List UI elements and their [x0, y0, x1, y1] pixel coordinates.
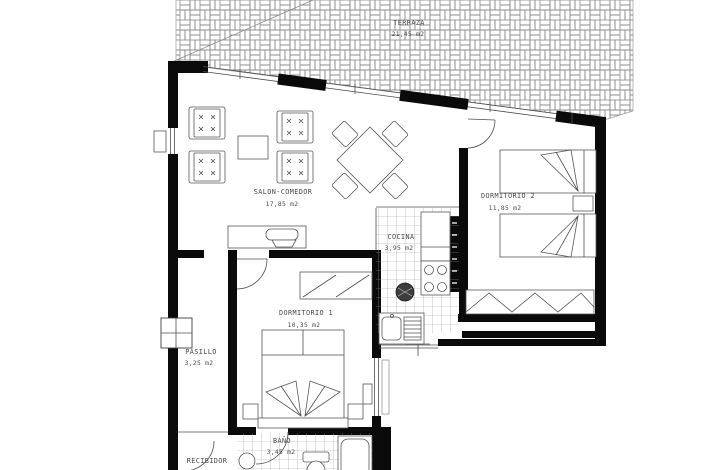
cocina-label: COCINA [388, 233, 415, 241]
cocina-area: 3,95 m2 [385, 245, 414, 252]
facade-wall-segment [278, 79, 326, 85]
bottom-right-wall-outer [462, 331, 606, 338]
stove [421, 261, 450, 295]
recibidor-room: RECIBIDOR [184, 441, 228, 470]
armchair [277, 151, 313, 183]
washbasin [239, 453, 255, 469]
salon-label: SALON-COMEDOR [254, 188, 313, 196]
dormitorio2-label: DORMITORIO 2 [481, 192, 535, 200]
door-arc [468, 119, 495, 148]
double-bed [258, 330, 348, 428]
dormitorio2-room: DORMITORIO 2 11,85 m2 [466, 119, 596, 314]
bed-single [500, 150, 596, 193]
dormitorio1-area: 10,35 m2 [288, 322, 321, 329]
floor-plan-canvas: TERRAZA 21,45 m2 [0, 0, 726, 470]
wardrobe [300, 272, 372, 299]
plant [396, 283, 414, 301]
facade-wall-segment [556, 116, 604, 122]
floor-plan-drawing: TERRAZA 21,45 m2 [0, 0, 726, 470]
right-exterior-wall [595, 117, 606, 345]
dormitorio2-area: 11,85 m2 [489, 205, 522, 212]
armchair [189, 107, 225, 139]
dining-table-set [332, 121, 409, 200]
coffee-table [238, 136, 268, 159]
nightstand [573, 196, 593, 211]
cocina-window [379, 345, 438, 348]
dormitorio1-room: DORMITORIO 1 10,35 m2 [237, 259, 372, 428]
pasillo-dorm1-wall [228, 258, 237, 430]
dorm1-window-sill [382, 360, 389, 414]
salon-south-wall [174, 250, 204, 258]
kitchen-sink [379, 313, 424, 344]
bano-east-wall [381, 430, 391, 470]
terraza-room: TERRAZA 21,45 m2 [172, 0, 633, 120]
pasillo-area: 3,25 m2 [185, 360, 214, 367]
fridge [421, 212, 450, 261]
wardrobe [466, 290, 594, 314]
salon-room: SALON-COMEDOR 17,85 m2 [189, 107, 408, 248]
dorm1-window-opening [372, 358, 381, 416]
dresser [363, 384, 372, 404]
nightstand [348, 404, 363, 419]
bathtub [338, 436, 372, 470]
left-exterior-wall [168, 61, 178, 470]
door-arc [237, 259, 267, 289]
entry-door-arc [184, 441, 214, 470]
top-left-wall-stub [168, 61, 208, 73]
bano-label: BAÑO [273, 436, 291, 445]
salon-area: 17,85 m2 [266, 201, 299, 208]
armchair [277, 111, 313, 143]
recibidor-label: RECIBIDOR [187, 457, 228, 465]
pasillo-room: PASILLO 3,25 m2 [185, 348, 217, 367]
bano-area: 3,45 m2 [267, 449, 296, 456]
dorm2-west-wall [459, 148, 468, 314]
salon-window-opening [166, 128, 180, 154]
sideboard-tv [228, 226, 306, 248]
armchair [189, 151, 225, 183]
drainboard [404, 317, 421, 340]
bano-room: BAÑO 3,45 m2 [237, 432, 373, 470]
terraza-label: TERRAZA [393, 19, 424, 27]
salon-window-sill [154, 131, 166, 152]
pasillo-label: PASILLO [185, 348, 216, 356]
terrace-paving-hatch [176, 0, 633, 120]
terraza-area: 21,45 m2 [392, 31, 425, 38]
nightstand [243, 404, 258, 419]
dormitorio1-label: DORMITORIO 1 [279, 309, 333, 317]
bed-single [500, 214, 596, 257]
headboard [258, 418, 348, 428]
cocina-room: COCINA 3,95 m2 [376, 207, 459, 344]
tv [266, 229, 298, 240]
bottom-right-wall-inner [438, 339, 606, 346]
dorm2-south-wall [458, 314, 600, 322]
